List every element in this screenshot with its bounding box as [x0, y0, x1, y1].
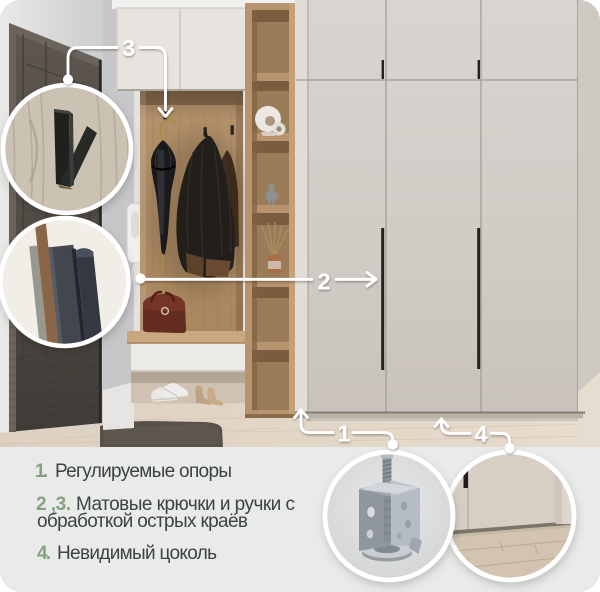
svg-text:Невидимый цоколь: Невидимый цоколь: [57, 543, 217, 564]
svg-text:1: 1: [337, 421, 350, 447]
svg-text:3: 3: [122, 35, 135, 61]
svg-text:Регулируемые опоры: Регулируемые опоры: [55, 461, 232, 482]
svg-text:4: 4: [474, 421, 487, 447]
svg-text:2: 2: [317, 269, 330, 295]
svg-text:обработкой острых краёв: обработкой острых краёв: [37, 511, 248, 532]
svg-text:1.: 1.: [35, 461, 48, 482]
svg-text:4.: 4.: [37, 543, 51, 564]
